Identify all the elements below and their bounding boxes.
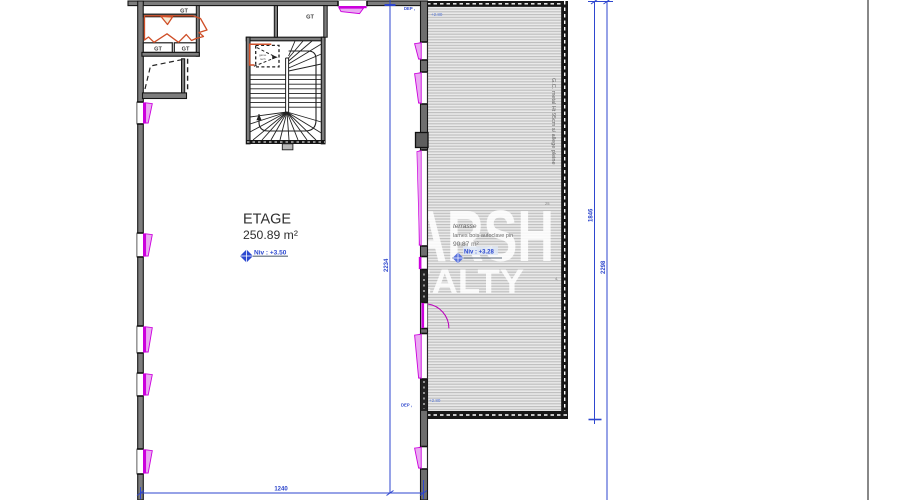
- svg-text:tech: tech: [260, 57, 266, 61]
- svg-text:Niv : +3.50: Niv : +3.50: [254, 250, 287, 257]
- svg-text:2298: 2298: [601, 260, 607, 274]
- svg-text:terrasse: terrasse: [453, 223, 477, 230]
- svg-text:250.89 m²: 250.89 m²: [243, 228, 298, 242]
- svg-text:+2.80: +2.80: [431, 12, 443, 17]
- svg-text:4,: 4,: [555, 276, 558, 281]
- svg-text:GT: GT: [154, 46, 162, 52]
- svg-text:1846: 1846: [589, 208, 595, 222]
- svg-text:GT: GT: [306, 15, 314, 21]
- svg-text:+2.80: +2.80: [429, 398, 441, 403]
- svg-text:DEP ,: DEP ,: [401, 403, 412, 408]
- svg-text:GT: GT: [182, 46, 190, 52]
- svg-text:DEP ,: DEP ,: [404, 6, 415, 11]
- svg-text:1240: 1240: [274, 487, 288, 493]
- svg-text:GT: GT: [180, 9, 188, 15]
- svg-text:Niv : +3.28: Niv : +3.28: [464, 250, 495, 256]
- svg-text:REALTY: REALTY: [381, 263, 524, 301]
- svg-text:2234: 2234: [384, 258, 390, 272]
- svg-text:G.C. metal Ht 95cm s/ allege p: G.C. metal Ht 95cm s/ allege pleine: [550, 78, 556, 165]
- svg-text:25: 25: [545, 201, 550, 206]
- svg-text:lames bois autoclave pin: lames bois autoclave pin: [453, 233, 513, 239]
- svg-text:ETAGE: ETAGE: [243, 212, 291, 228]
